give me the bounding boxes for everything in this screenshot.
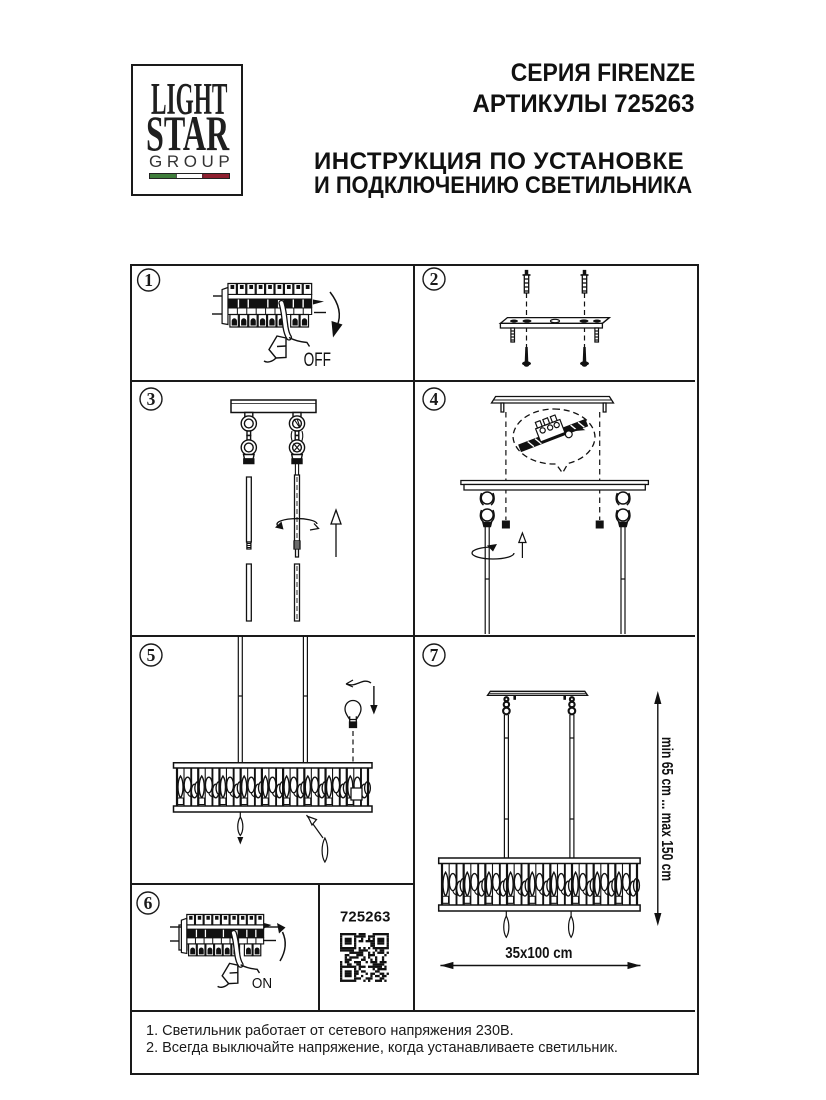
svg-text:35x100 cm: 35x100 cm xyxy=(505,945,572,962)
svg-text:OFF: OFF xyxy=(304,349,331,371)
svg-text:725263: 725263 xyxy=(340,910,391,926)
svg-text:ON: ON xyxy=(252,974,272,991)
svg-text:min 65 cm ... max 150 cm: min 65 cm ... max 150 cm xyxy=(659,737,677,881)
